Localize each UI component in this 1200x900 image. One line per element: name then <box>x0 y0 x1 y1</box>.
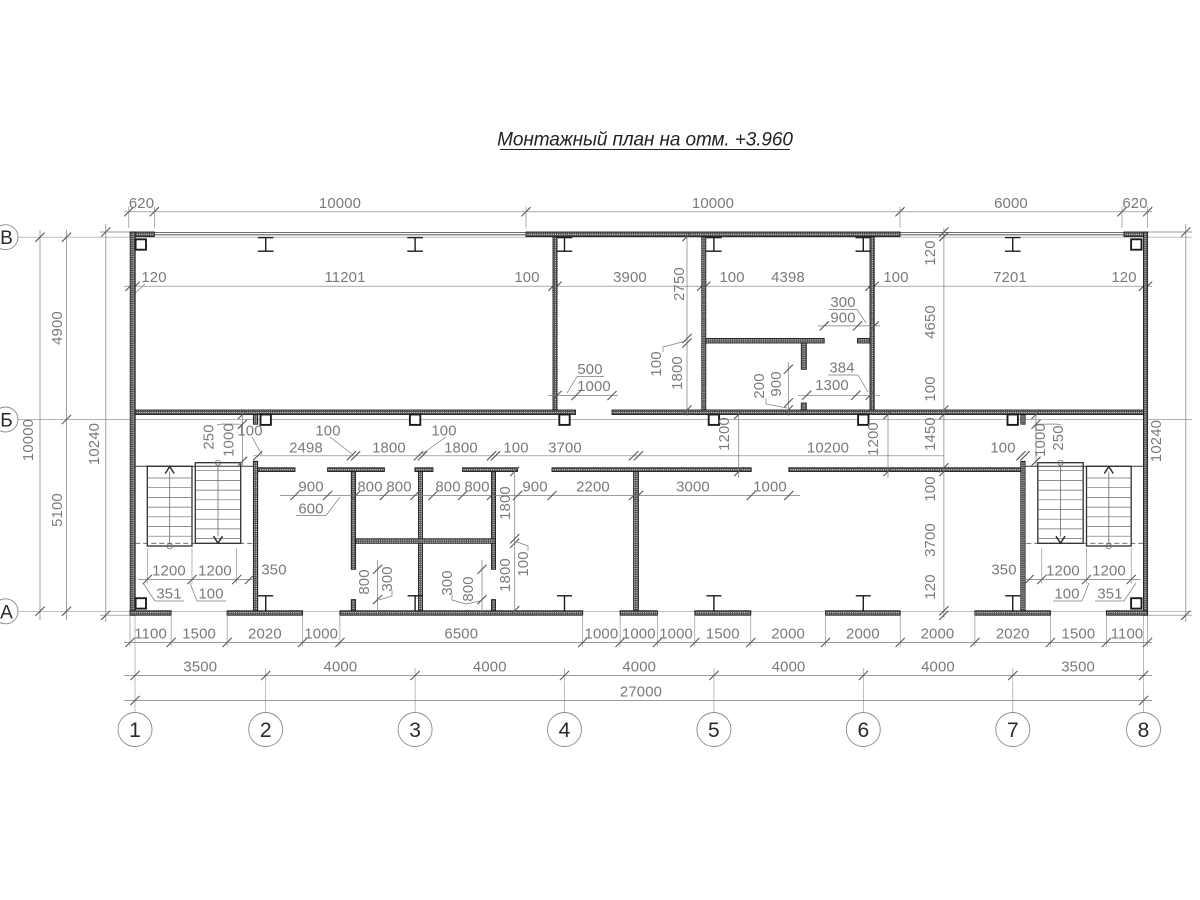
svg-text:800: 800 <box>357 480 382 496</box>
svg-text:250: 250 <box>202 424 218 449</box>
svg-text:10000: 10000 <box>692 196 734 212</box>
svg-text:200: 200 <box>752 373 768 398</box>
svg-text:1000: 1000 <box>222 423 238 457</box>
svg-text:800: 800 <box>357 569 373 594</box>
svg-text:100: 100 <box>198 587 223 603</box>
svg-text:4900: 4900 <box>50 311 66 345</box>
svg-text:120: 120 <box>923 574 939 599</box>
svg-text:1200: 1200 <box>1092 564 1126 580</box>
svg-text:4000: 4000 <box>324 660 358 676</box>
svg-text:2020: 2020 <box>996 627 1030 643</box>
svg-text:5100: 5100 <box>50 493 66 527</box>
svg-text:6000: 6000 <box>994 196 1028 212</box>
svg-text:3: 3 <box>409 719 421 742</box>
svg-text:11201: 11201 <box>324 270 365 286</box>
svg-text:4398: 4398 <box>771 270 805 286</box>
svg-text:1800: 1800 <box>372 441 406 457</box>
svg-text:120: 120 <box>141 270 166 286</box>
svg-text:1800: 1800 <box>444 441 478 457</box>
svg-text:1100: 1100 <box>1111 627 1144 643</box>
svg-text:800: 800 <box>464 480 489 496</box>
svg-text:1500: 1500 <box>706 627 740 643</box>
svg-text:2: 2 <box>260 719 272 742</box>
svg-text:А: А <box>0 602 13 623</box>
svg-text:1: 1 <box>129 719 141 742</box>
svg-text:7: 7 <box>1007 719 1019 742</box>
svg-text:600: 600 <box>298 502 323 518</box>
svg-text:250: 250 <box>1051 425 1067 450</box>
svg-text:10240: 10240 <box>1149 420 1165 462</box>
svg-text:300: 300 <box>380 566 396 591</box>
svg-text:350: 350 <box>261 563 286 579</box>
svg-text:10000: 10000 <box>319 196 361 212</box>
svg-text:4: 4 <box>559 719 571 742</box>
svg-text:100: 100 <box>990 441 1015 457</box>
svg-text:4000: 4000 <box>772 660 806 676</box>
svg-text:4000: 4000 <box>473 660 507 676</box>
svg-text:384: 384 <box>829 361 854 377</box>
svg-text:2020: 2020 <box>248 627 282 643</box>
svg-text:1500: 1500 <box>182 627 216 643</box>
svg-text:8: 8 <box>1138 719 1150 742</box>
svg-text:1200: 1200 <box>866 422 882 456</box>
svg-text:3700: 3700 <box>923 523 939 557</box>
svg-text:4650: 4650 <box>923 305 939 339</box>
svg-text:7201: 7201 <box>993 270 1027 286</box>
svg-text:1000: 1000 <box>577 379 611 395</box>
svg-text:10240: 10240 <box>87 423 103 465</box>
svg-text:800: 800 <box>386 480 411 496</box>
svg-text:900: 900 <box>769 371 785 396</box>
svg-text:3000: 3000 <box>676 480 710 496</box>
svg-text:500: 500 <box>577 362 602 378</box>
svg-text:1450: 1450 <box>923 417 939 451</box>
svg-text:1200: 1200 <box>717 417 733 451</box>
svg-text:100: 100 <box>923 476 939 501</box>
svg-text:6: 6 <box>857 719 869 742</box>
svg-text:300: 300 <box>440 570 456 595</box>
svg-text:1200: 1200 <box>1046 564 1080 580</box>
svg-text:100: 100 <box>503 441 528 457</box>
svg-text:900: 900 <box>522 480 547 496</box>
svg-text:3700: 3700 <box>548 441 582 457</box>
svg-text:1000: 1000 <box>753 480 787 496</box>
svg-text:100: 100 <box>883 270 908 286</box>
svg-text:3500: 3500 <box>183 660 217 676</box>
svg-text:1000: 1000 <box>1033 423 1049 457</box>
svg-text:100: 100 <box>315 424 340 440</box>
svg-text:100: 100 <box>649 351 665 376</box>
svg-text:Монтажный план на отм. +3.960: Монтажный план на отм. +3.960 <box>497 130 793 151</box>
svg-text:В: В <box>0 228 13 249</box>
svg-text:1300: 1300 <box>815 378 849 394</box>
svg-text:2200: 2200 <box>576 480 610 496</box>
svg-text:900: 900 <box>830 311 855 327</box>
svg-text:1100: 1100 <box>134 627 167 643</box>
svg-text:351: 351 <box>156 587 181 603</box>
svg-text:100: 100 <box>516 551 532 576</box>
svg-text:2498: 2498 <box>289 441 323 457</box>
svg-text:1800: 1800 <box>670 356 686 390</box>
svg-text:3900: 3900 <box>613 270 647 286</box>
svg-text:4000: 4000 <box>921 660 955 676</box>
svg-text:100: 100 <box>431 424 456 440</box>
svg-text:100: 100 <box>923 376 939 401</box>
svg-text:350: 350 <box>991 563 1016 579</box>
svg-text:800: 800 <box>461 576 477 601</box>
svg-text:1200: 1200 <box>198 564 232 580</box>
svg-text:1000: 1000 <box>304 627 338 643</box>
svg-text:100: 100 <box>1054 587 1079 603</box>
svg-text:2750: 2750 <box>672 267 688 301</box>
svg-text:620: 620 <box>129 196 154 212</box>
svg-text:1800: 1800 <box>498 486 514 520</box>
svg-text:10000: 10000 <box>21 419 37 461</box>
svg-text:1500: 1500 <box>1062 627 1096 643</box>
svg-text:300: 300 <box>830 295 855 311</box>
svg-text:900: 900 <box>298 480 323 496</box>
svg-text:1000: 1000 <box>622 627 656 643</box>
svg-text:120: 120 <box>923 240 939 265</box>
svg-text:2000: 2000 <box>846 627 880 643</box>
svg-text:2000: 2000 <box>921 627 955 643</box>
svg-text:Б: Б <box>0 411 12 432</box>
svg-text:1000: 1000 <box>659 627 693 643</box>
svg-text:351: 351 <box>1097 587 1122 603</box>
svg-text:3500: 3500 <box>1061 660 1095 676</box>
svg-text:6500: 6500 <box>444 627 478 643</box>
svg-text:100: 100 <box>719 270 744 286</box>
svg-text:1000: 1000 <box>585 627 619 643</box>
svg-text:120: 120 <box>1111 270 1136 286</box>
svg-text:800: 800 <box>435 480 460 496</box>
svg-text:27000: 27000 <box>620 685 662 701</box>
svg-text:620: 620 <box>1122 196 1147 212</box>
svg-text:5: 5 <box>708 719 720 742</box>
svg-text:1800: 1800 <box>498 558 514 592</box>
svg-text:2000: 2000 <box>771 627 805 643</box>
svg-text:4000: 4000 <box>622 660 656 676</box>
svg-text:1200: 1200 <box>152 564 186 580</box>
svg-text:100: 100 <box>514 270 539 286</box>
svg-text:10200: 10200 <box>807 441 849 457</box>
